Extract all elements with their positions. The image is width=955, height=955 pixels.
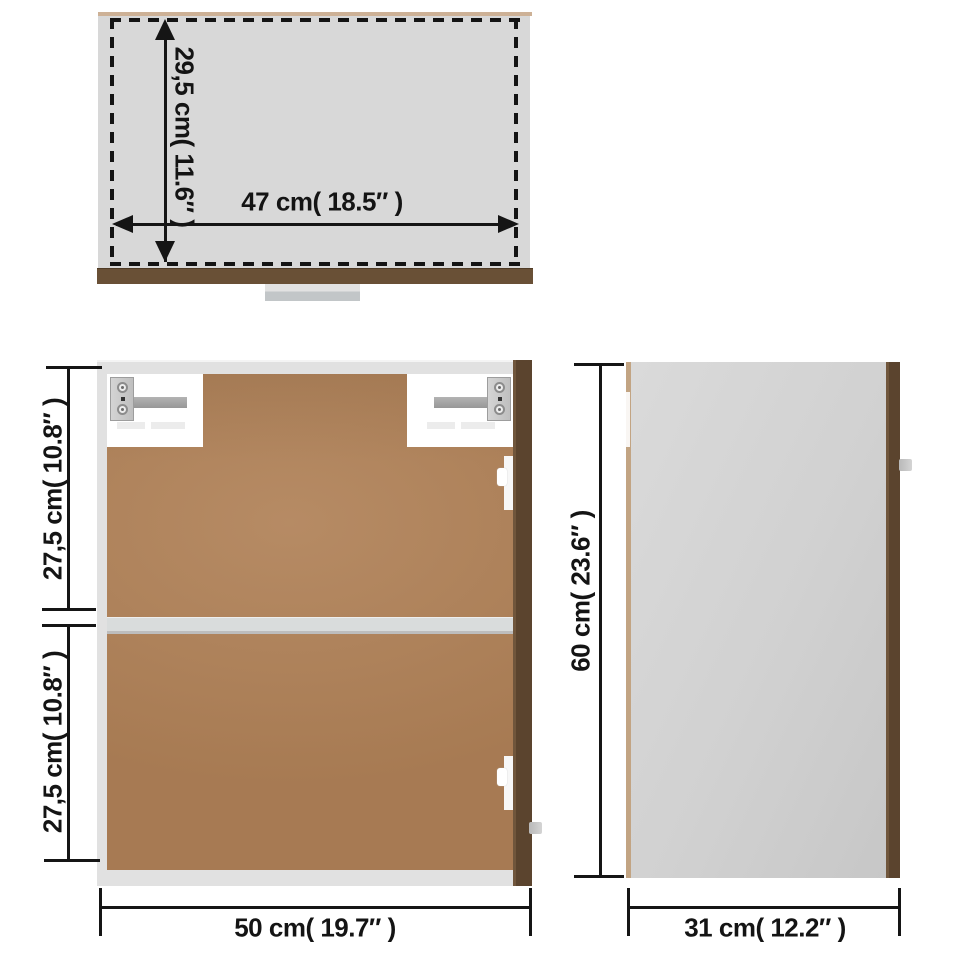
screw-dot-icon	[498, 397, 502, 401]
screw-dot-icon	[121, 397, 125, 401]
arrowhead-right-icon	[498, 215, 519, 233]
bracket-shadow	[461, 422, 495, 429]
front-view-cabinet	[97, 360, 513, 886]
hanging-bracket-left	[110, 377, 134, 421]
top-width-dimension-label: 47 cm( 18.5″ )	[241, 187, 403, 218]
dimension-tick	[574, 875, 624, 878]
hinge-upper-knob	[497, 468, 507, 486]
screw-icon	[494, 382, 505, 393]
door-handle-top-view	[265, 284, 360, 301]
side-door-front-edge	[886, 362, 900, 878]
dimension-tick	[42, 624, 96, 627]
dimension-tick	[898, 888, 901, 936]
dimension-tick	[44, 859, 100, 862]
front-open-door-edge	[513, 360, 532, 886]
side-depth-dimension-line	[627, 906, 901, 909]
hanging-rail-left	[134, 397, 187, 408]
dimension-tick	[46, 366, 102, 369]
bracket-shadow	[117, 422, 145, 429]
bracket-shadow	[151, 422, 185, 429]
top-view-door-front-edge	[97, 268, 533, 284]
side-edge-gap	[626, 392, 630, 447]
hanging-bracket-right	[487, 377, 511, 421]
arrowhead-down-icon	[155, 241, 175, 262]
shelf-shadow	[107, 631, 513, 634]
dimension-tick	[529, 888, 532, 936]
dimension-tick	[627, 888, 630, 936]
screw-icon	[117, 382, 128, 393]
dimension-tick	[42, 608, 96, 611]
front-cutout-left	[107, 374, 203, 447]
top-depth-dimension-line	[164, 24, 167, 262]
screw-icon	[117, 404, 128, 415]
bracket-shadow	[427, 422, 455, 429]
side-panel	[631, 362, 886, 878]
front-width-dimension-line	[99, 906, 532, 909]
door-handle-side-view	[899, 459, 912, 471]
hinge-lower-knob	[497, 768, 507, 786]
dimension-diagram: 29,5 cm( 11.6″ ) 47 cm( 18.5″ )	[0, 0, 955, 955]
side-view-cabinet	[626, 362, 900, 878]
upper-height-dimension-label: 27,5 cm( 10.8″ )	[38, 398, 69, 580]
side-height-dimension-label: 60 cm( 23.6″ )	[566, 510, 597, 672]
top-view-panel	[98, 16, 530, 268]
door-handle-front-view	[529, 822, 542, 834]
side-depth-dimension-label: 31 cm( 12.2″ )	[684, 913, 846, 944]
screw-icon	[494, 404, 505, 415]
dimension-tick	[574, 363, 624, 366]
lower-height-dimension-label: 27,5 cm( 10.8″ )	[38, 651, 69, 833]
front-cutout-right	[407, 374, 513, 447]
front-width-dimension-label: 50 cm( 19.7″ )	[234, 913, 396, 944]
arrowhead-up-icon	[155, 19, 175, 40]
top-view-dashed-bottom	[110, 262, 520, 266]
hanging-rail-right	[434, 397, 487, 408]
top-depth-dimension-label: 29,5 cm( 11.6″ )	[169, 47, 200, 228]
dimension-tick	[99, 888, 102, 936]
side-height-dimension-line	[599, 365, 602, 878]
shelf	[107, 617, 513, 631]
arrowhead-left-icon	[112, 215, 133, 233]
